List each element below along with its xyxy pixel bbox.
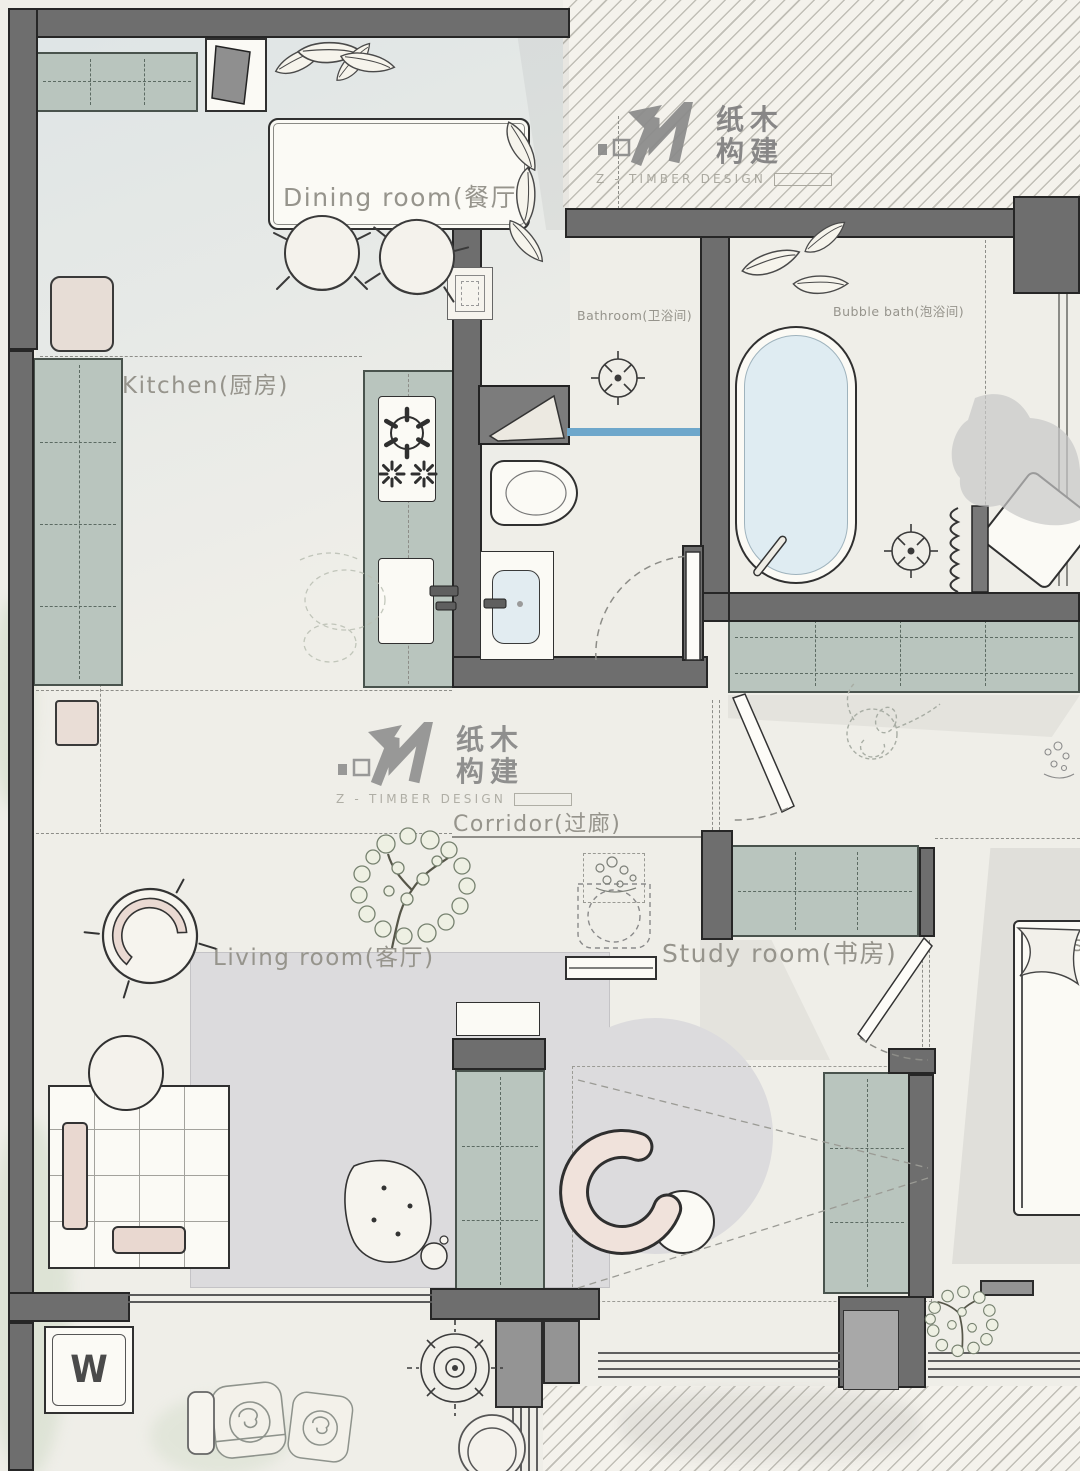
kitchen-left-counter	[33, 358, 123, 686]
room-label-corridor: Corridor(过廊)	[453, 806, 621, 838]
shower-unit	[478, 385, 570, 445]
door-arc	[734, 808, 788, 820]
washer-mark: W	[70, 1348, 108, 1392]
outdoor-plant-blur	[150, 1396, 290, 1471]
window-mullion	[528, 1408, 530, 1471]
entry-pillar-a	[495, 1320, 543, 1408]
window-line	[928, 1352, 1080, 1354]
brand-logo-middle: 纸木 构建 Z - TIMBER DESIGN	[336, 722, 572, 806]
bathtub-water	[744, 335, 848, 575]
brand-zh-line1: 纸木	[716, 104, 784, 136]
dashed-line	[935, 838, 1080, 839]
cushion	[112, 1226, 186, 1254]
toilet	[490, 460, 578, 526]
wall-left-main	[8, 350, 34, 1298]
tree-plan-icon	[351, 828, 475, 948]
window-line	[598, 1368, 840, 1370]
wall-bathroom-bottom	[452, 656, 708, 688]
wall-top	[8, 8, 570, 38]
window-mullion	[520, 1408, 522, 1471]
wall-studyleft-cap	[452, 1038, 546, 1070]
bed-inner-line	[1021, 928, 1023, 1208]
brand-box-icon	[774, 173, 832, 186]
stool	[55, 700, 99, 746]
entry-pillar-b	[543, 1320, 580, 1384]
vanity-sink	[492, 570, 540, 644]
fridge	[50, 276, 114, 352]
wall-top-right	[1013, 196, 1080, 294]
room-label-master: Mast	[1038, 932, 1080, 956]
dashed-line	[36, 690, 452, 691]
bedroom-plant-scribble	[1044, 742, 1074, 778]
ottoman	[88, 1035, 164, 1111]
wall-study-jamb-cap	[888, 1048, 936, 1074]
window-line	[928, 1376, 1080, 1378]
corner-shelf	[447, 267, 493, 320]
window-line	[928, 1368, 1080, 1370]
brand-zh-line1: 纸木	[456, 724, 524, 756]
window-line	[598, 1376, 840, 1378]
wall-bath-top	[565, 208, 1080, 238]
wall-study-north-jamb	[919, 847, 935, 937]
hatch-shadow	[620, 1390, 920, 1460]
wall-entry	[430, 1288, 600, 1320]
window-line	[128, 1294, 432, 1296]
window-line	[928, 1360, 1080, 1362]
study-desk	[565, 956, 657, 980]
stove-counter	[378, 396, 436, 502]
door-pocket-dashes	[719, 700, 720, 830]
window-mullion	[536, 1408, 538, 1471]
kitchen-sink	[378, 558, 434, 644]
floor-plan: W Dining room(餐厅) Kitchen(厨房) Bathroom(卫…	[0, 0, 1080, 1471]
door-pocket-dashes	[712, 700, 713, 830]
door-pocket-dashes	[922, 940, 923, 1052]
room-label-bubble-bath: Bubble bath(泡浴间)	[833, 301, 964, 320]
lamp-symbol-icon	[407, 1320, 503, 1416]
closet-cabinet-band	[728, 613, 1080, 693]
door-arc	[596, 556, 690, 660]
cushion	[62, 1122, 88, 1230]
bottom-right-box	[843, 1310, 899, 1390]
brand-en-text: Z - TIMBER DESIGN	[596, 172, 766, 186]
wall-corner	[701, 592, 730, 622]
shadow	[728, 695, 1080, 737]
study-wardrobe	[823, 1072, 911, 1294]
wall-left-lower	[8, 1322, 34, 1471]
window-mullion	[512, 1408, 514, 1471]
wall-bubble-bottom	[728, 592, 1080, 622]
window-line	[598, 1352, 840, 1354]
dining-sideboard	[36, 52, 198, 112]
room-label-living: Living room(客厅)	[213, 938, 435, 972]
wall-study-jamb	[908, 1074, 934, 1298]
washer-box: W	[44, 1326, 134, 1414]
brand-monogram-icon	[336, 722, 448, 790]
room-label-study: Study room(书房)	[662, 934, 897, 970]
dashed-line	[40, 356, 362, 357]
desk-shelf	[583, 853, 645, 903]
tree-plan-icon	[925, 1286, 998, 1357]
wall-left-upper	[8, 8, 38, 350]
glass-partition	[567, 428, 700, 436]
wall-bath-door-jamb	[682, 545, 704, 661]
sketch-chair	[287, 1391, 355, 1464]
study-side-table	[651, 1190, 715, 1254]
dashed-line	[36, 833, 452, 834]
floor-drain-icon	[884, 524, 938, 578]
brand-logo-top: 纸木 构建 Z - TIMBER DESIGN	[596, 102, 832, 186]
brand-monogram-icon	[596, 102, 708, 170]
tilted-side-table	[978, 469, 1080, 591]
wall-bottom-left	[8, 1292, 130, 1322]
brand-en-text: Z - TIMBER DESIGN	[336, 792, 506, 806]
study-left-cabinet	[455, 1070, 545, 1292]
room-label-dining: Dining room(餐厅)	[283, 178, 528, 214]
floor-drain-icon	[591, 351, 645, 405]
wall-corridor-column	[701, 830, 733, 940]
room-label-bathroom: Bathroom(卫浴间)	[577, 305, 692, 324]
door-pocket-dashes	[929, 940, 930, 1052]
brand-box-icon	[514, 793, 572, 806]
study-north-cabinet	[731, 845, 919, 937]
brand-zh-line2: 构建	[456, 756, 524, 788]
room-label-kitchen: Kitchen(厨房)	[122, 366, 289, 400]
towel-radiator-coil	[951, 508, 959, 592]
bed	[1013, 920, 1080, 1216]
entry-door-frame	[205, 38, 267, 112]
window-line	[598, 1360, 840, 1362]
bottom-right-bar	[980, 1280, 1034, 1296]
wall-bath-divider	[700, 236, 730, 608]
window-line	[128, 1301, 432, 1303]
sketch-stool	[457, 1415, 525, 1471]
brand-zh-line2: 构建	[716, 136, 784, 168]
tv-console	[456, 1002, 540, 1036]
